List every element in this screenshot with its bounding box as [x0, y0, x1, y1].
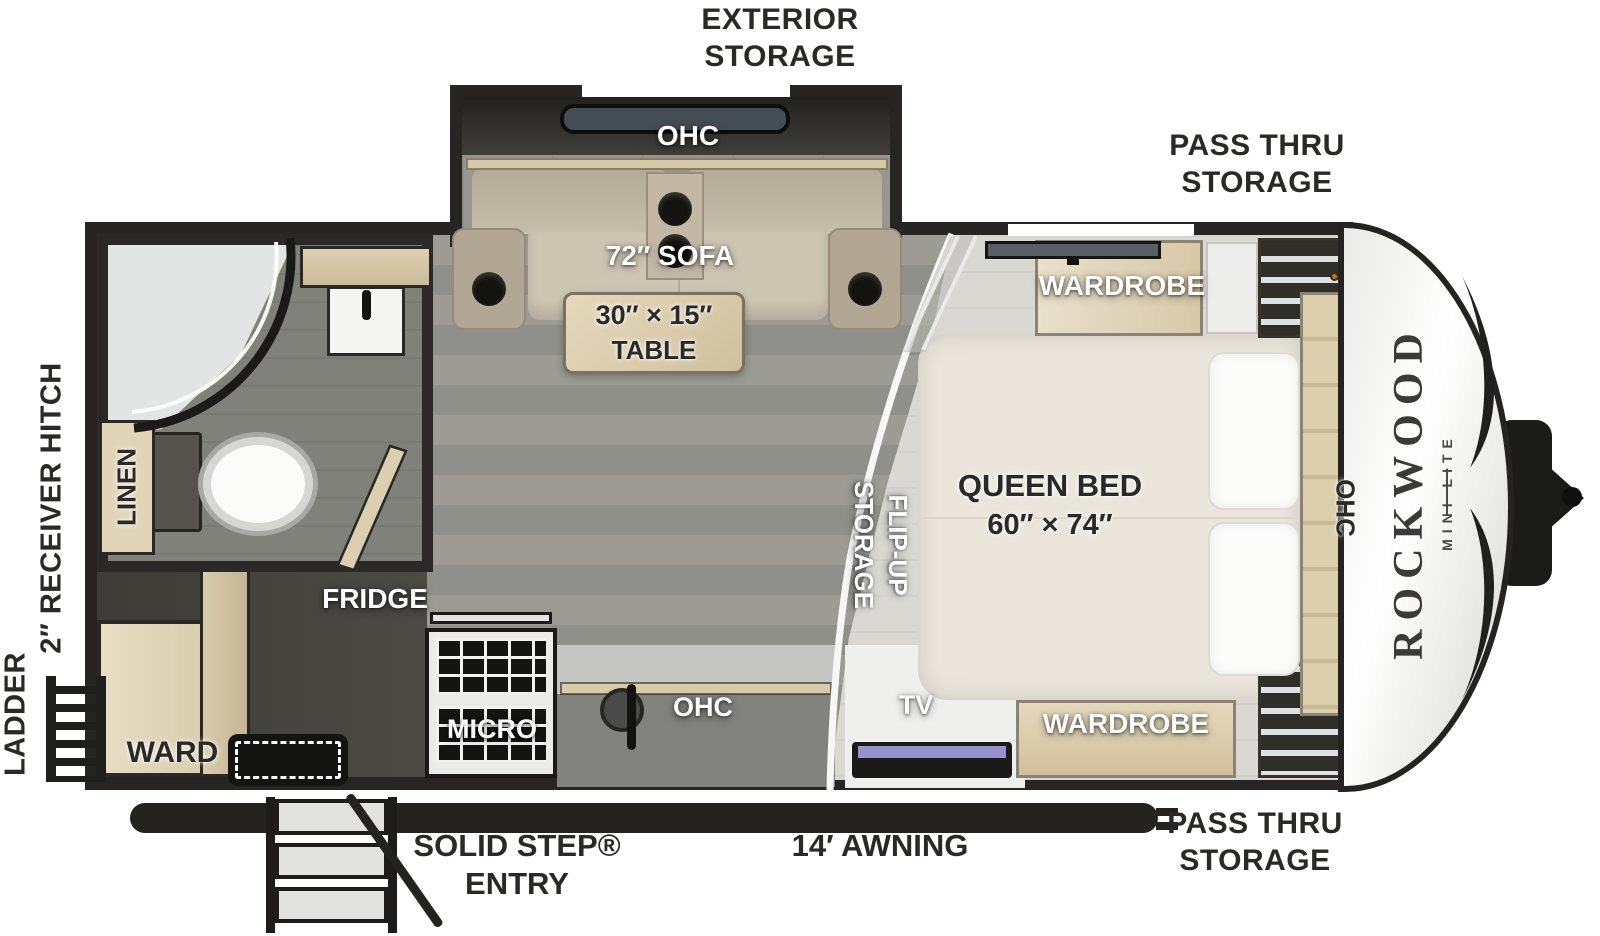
- label-awning: 14′ AWNING: [760, 827, 1000, 865]
- cupholder: [472, 272, 506, 306]
- step: [275, 843, 388, 879]
- vanity-cabinet: [300, 246, 432, 288]
- cupholder: [658, 192, 692, 226]
- label-kitchen-ohc: OHC: [648, 692, 758, 723]
- label-pass-thru-storage-top: PASS THRU STORAGE: [1127, 128, 1387, 201]
- label-sofa: 72″ SOFA: [550, 240, 790, 272]
- kitchen-window-slit: [420, 790, 620, 801]
- rear-ladder: [46, 676, 106, 782]
- label-receiver-hitch: 2″ RECEIVER HITCH: [34, 362, 69, 654]
- label-wardrobe-front: WARDROBE: [1002, 270, 1242, 302]
- sofa-back-cushion: [686, 170, 882, 234]
- kitchen-faucet: [627, 684, 636, 750]
- label-wardrobe-rear: WARDROBE: [1006, 708, 1246, 740]
- label-solid-step-entry: SOLID STEP® ENTRY: [388, 827, 646, 903]
- label-queen-bed-size: 60″ × 74″: [920, 509, 1180, 542]
- floorplan-canvas: ROCKWOOD MINI LITE EXTERIOR STORAGE PAS: [0, 0, 1600, 936]
- entry-door-mat: [228, 734, 348, 786]
- label-queen-bed-name: QUEEN BED: [920, 468, 1180, 504]
- label-ward: WARD: [100, 736, 245, 770]
- label-micro: MICRO: [432, 714, 552, 745]
- label-exterior-storage: EXTERIOR STORAGE: [630, 2, 930, 75]
- sofa-back-cushion: [472, 170, 668, 234]
- label-bed-ohc: OHC: [1330, 479, 1361, 537]
- marker-light: [1330, 272, 1339, 281]
- range-with-microwave: [425, 628, 557, 778]
- tv-screen: [858, 746, 1006, 758]
- stove-grate: [436, 638, 546, 694]
- label-pass-thru-storage-bottom: PASS THRU STORAGE: [1125, 806, 1385, 879]
- entry-steps: [262, 797, 402, 935]
- brand-name: ROCKWOOD: [1385, 324, 1433, 660]
- label-table: 30″ × 15″ TABLE: [568, 300, 740, 366]
- bedroom-window: [985, 241, 1161, 259]
- brand-subtitle: MINI LITE: [1439, 324, 1455, 660]
- label-fridge: FRIDGE: [295, 583, 455, 615]
- pillow: [1208, 352, 1300, 510]
- kitchen-sink: [600, 688, 644, 732]
- label-flip-up-storage: FLIP-UP STORAGE: [846, 481, 914, 609]
- label-queen-bed: QUEEN BED 60″ × 74″: [920, 468, 1180, 542]
- step-rail: [266, 797, 275, 933]
- hitch-ball: [1562, 487, 1582, 507]
- toilet: [198, 432, 318, 536]
- label-linen: LINEN: [112, 448, 143, 526]
- hitch-bar: [1550, 491, 1576, 504]
- bedroom-window-slit-bottom: [900, 790, 1115, 801]
- bathroom-faucet: [362, 290, 371, 320]
- label-slide-ohc: OHC: [618, 120, 758, 152]
- pillow: [1208, 522, 1300, 676]
- hitch-coupler: [1548, 466, 1584, 530]
- slide-window-slit: [582, 85, 790, 97]
- sofa-back-shelf: [466, 158, 888, 170]
- label-flip-up-line1: FLIP-UP: [880, 481, 914, 609]
- bedroom-window-slit-top: [1008, 224, 1194, 236]
- brand-logo: ROCKWOOD MINI LITE: [1385, 324, 1455, 660]
- label-tv: TV: [856, 690, 976, 721]
- label-ladder: LADDER: [0, 652, 34, 776]
- label-flip-up-line2: STORAGE: [846, 481, 880, 609]
- label-table-word: TABLE: [568, 335, 740, 366]
- rule-line: [1446, 469, 1448, 515]
- cupholder: [848, 272, 882, 306]
- toilet-tank: [152, 432, 202, 532]
- label-table-size: 30″ × 15″: [568, 300, 740, 331]
- step: [275, 887, 388, 923]
